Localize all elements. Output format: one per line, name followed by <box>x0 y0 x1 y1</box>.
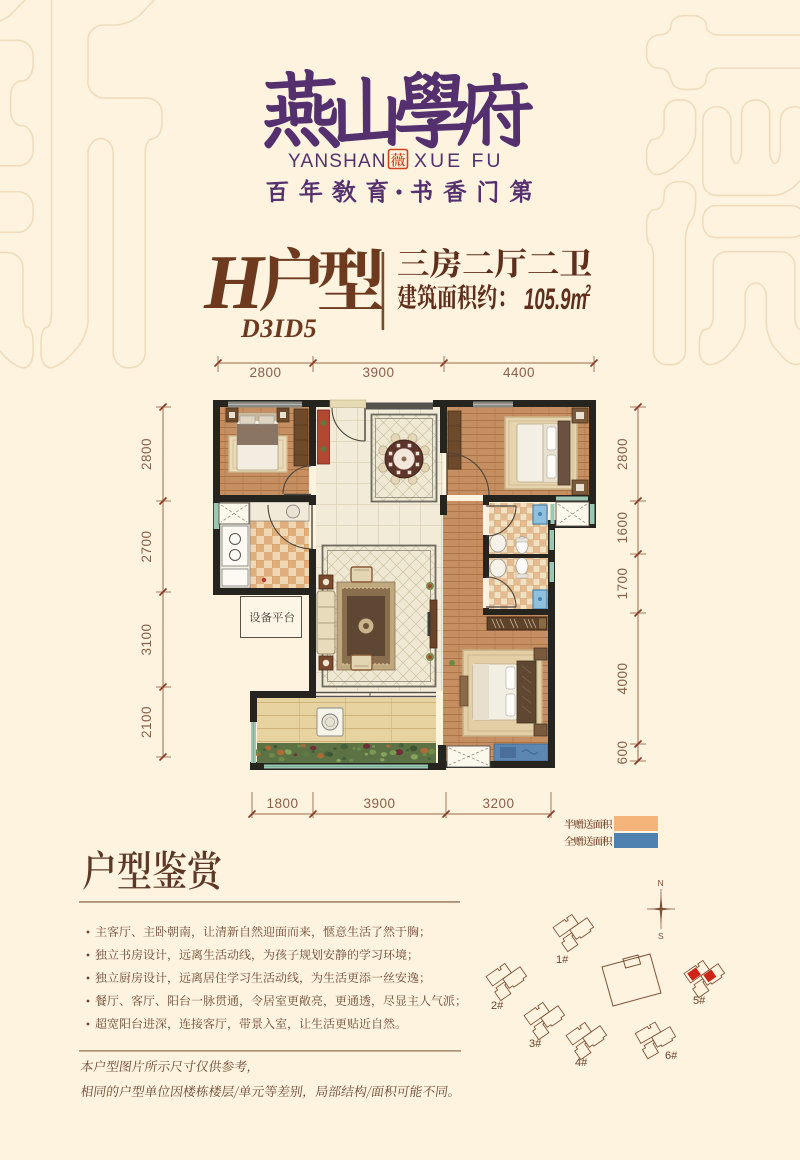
svg-text:2#: 2# <box>491 1000 504 1012</box>
svg-text:5#: 5# <box>693 995 706 1007</box>
svg-text:105.9m: 105.9m <box>524 283 587 317</box>
svg-text:4#: 4# <box>575 1057 588 1069</box>
svg-text:3900: 3900 <box>362 365 394 380</box>
svg-text:4400: 4400 <box>503 365 535 380</box>
svg-text:2800: 2800 <box>249 365 281 380</box>
svg-text:2800: 2800 <box>615 438 630 470</box>
svg-text:2: 2 <box>584 280 591 299</box>
svg-text:N: N <box>658 878 664 888</box>
svg-text:2100: 2100 <box>139 706 154 738</box>
svg-text:H: H <box>203 239 266 325</box>
svg-text:6#: 6# <box>665 1050 678 1062</box>
svg-text:3#: 3# <box>529 1038 542 1050</box>
svg-text:2700: 2700 <box>139 530 154 562</box>
svg-text:2800: 2800 <box>139 438 154 470</box>
svg-text:1800: 1800 <box>266 796 298 811</box>
svg-text:4000: 4000 <box>615 662 630 694</box>
svg-text:S: S <box>658 931 664 941</box>
svg-text:YANSHAN: YANSHAN <box>288 151 387 172</box>
svg-text:600: 600 <box>615 740 630 764</box>
svg-text:3200: 3200 <box>482 796 514 811</box>
svg-text:1600: 1600 <box>615 511 630 543</box>
svg-text:3100: 3100 <box>139 623 154 655</box>
svg-text:1700: 1700 <box>615 567 630 599</box>
svg-text:D3ID5: D3ID5 <box>240 314 317 343</box>
svg-text:3900: 3900 <box>363 796 395 811</box>
svg-text:XUE FU: XUE FU <box>414 150 504 172</box>
svg-text:1#: 1# <box>556 954 569 966</box>
